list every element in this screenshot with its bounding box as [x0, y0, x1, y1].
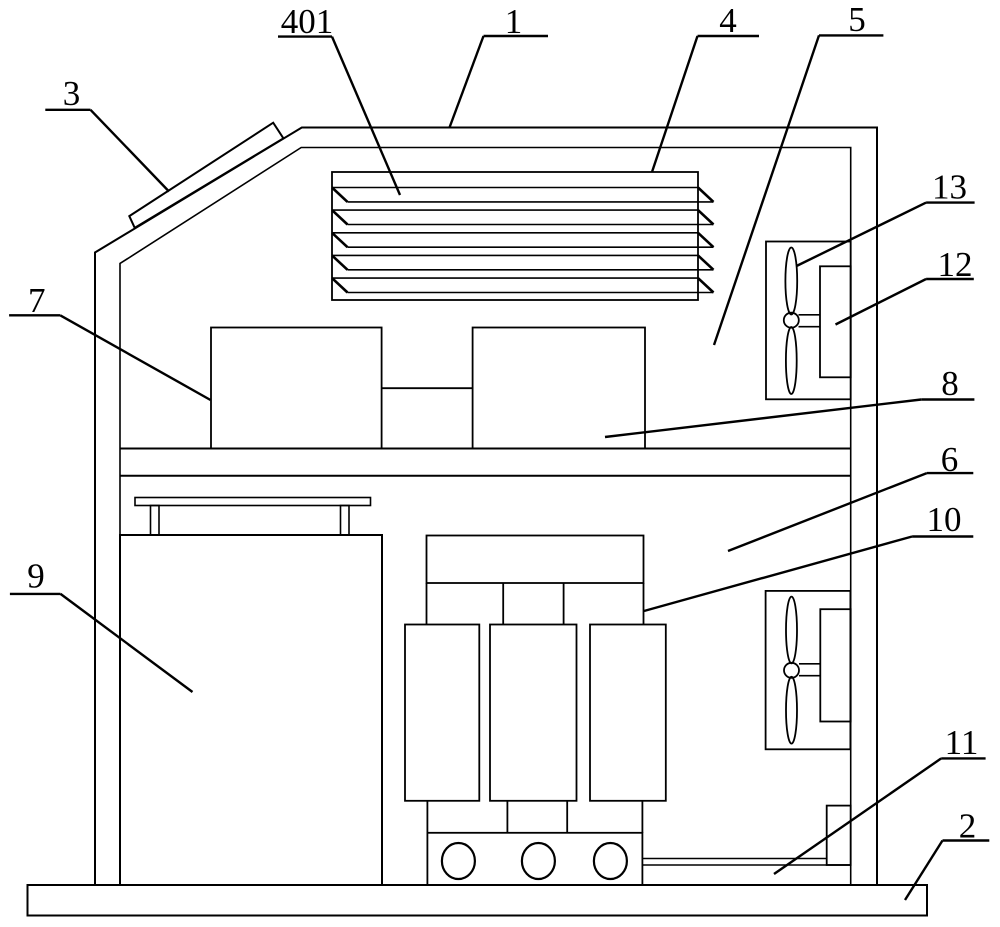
svg-text:9: 9	[27, 557, 45, 596]
svg-text:11: 11	[945, 723, 979, 762]
svg-text:1: 1	[505, 2, 523, 41]
svg-text:3: 3	[63, 74, 81, 113]
svg-text:2: 2	[959, 807, 977, 846]
svg-text:7: 7	[28, 281, 46, 320]
svg-text:401: 401	[281, 2, 334, 41]
svg-text:4: 4	[719, 1, 737, 40]
svg-text:10: 10	[927, 500, 962, 539]
svg-text:6: 6	[941, 440, 959, 479]
svg-text:8: 8	[941, 364, 959, 403]
svg-text:13: 13	[932, 168, 967, 207]
svg-text:12: 12	[938, 245, 973, 284]
svg-text:5: 5	[848, 0, 866, 39]
